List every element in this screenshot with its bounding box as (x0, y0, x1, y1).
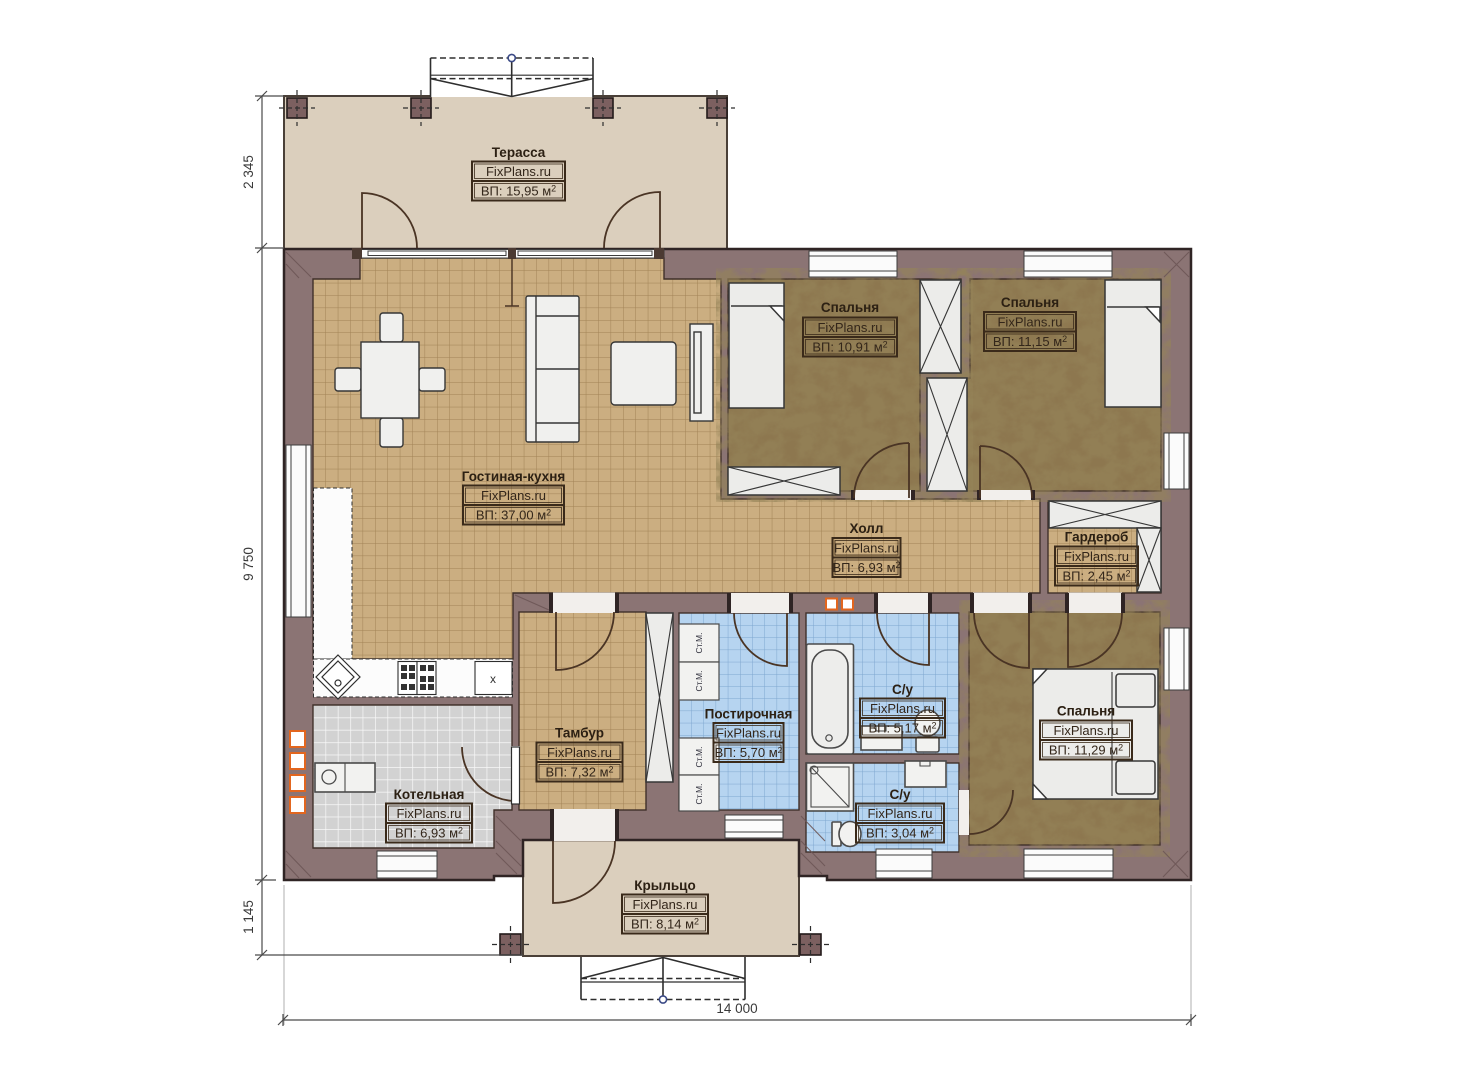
svg-text:FixPlans.ru: FixPlans.ru (867, 806, 932, 821)
svg-text:Спальня: Спальня (821, 300, 879, 315)
svg-text:1 145: 1 145 (241, 900, 256, 934)
svg-text:FixPlans.ru: FixPlans.ru (834, 541, 899, 556)
svg-text:FixPlans.ru: FixPlans.ru (547, 745, 612, 760)
svg-text:ВП: 5,17 м2: ВП: 5,17 м2 (868, 721, 936, 736)
svg-text:Постирочная: Постирочная (705, 707, 793, 722)
svg-text:FixPlans.ru: FixPlans.ru (1053, 723, 1118, 738)
svg-text:ВП: 10,91 м2: ВП: 10,91 м2 (812, 340, 887, 355)
svg-text:14 000: 14 000 (716, 1001, 757, 1016)
svg-text:ВП: 2,45 м2: ВП: 2,45 м2 (1062, 569, 1130, 584)
svg-text:ВП: 3,04 м2: ВП: 3,04 м2 (866, 826, 934, 841)
svg-text:Ст.М.: Ст.М. (694, 671, 704, 692)
svg-text:ВП: 11,15 м2: ВП: 11,15 м2 (993, 334, 1067, 349)
svg-text:Спальня: Спальня (1057, 704, 1115, 719)
svg-text:FixPlans.ru: FixPlans.ru (1064, 549, 1129, 564)
svg-text:ВП: 11,29 м2: ВП: 11,29 м2 (1049, 743, 1123, 758)
svg-text:FixPlans.ru: FixPlans.ru (870, 701, 935, 716)
svg-text:ВП: 5,70 м2: ВП: 5,70 м2 (715, 745, 783, 760)
svg-text:FixPlans.ru: FixPlans.ru (632, 897, 697, 912)
svg-text:ВП: 6,93 м2: ВП: 6,93 м2 (395, 826, 463, 841)
svg-text:Крыльцо: Крыльцо (634, 878, 695, 893)
svg-text:Ст.М.: Ст.М. (694, 633, 704, 654)
svg-text:Котельная: Котельная (394, 787, 465, 802)
svg-text:Холл: Холл (850, 521, 884, 536)
svg-text:FixPlans.ru: FixPlans.ru (396, 806, 461, 821)
svg-text:С/у: С/у (892, 682, 914, 697)
svg-text:Тамбур: Тамбур (555, 726, 604, 741)
svg-text:9 750: 9 750 (241, 547, 256, 581)
svg-text:FixPlans.ru: FixPlans.ru (716, 726, 781, 741)
svg-text:2 345: 2 345 (241, 155, 256, 189)
svg-text:ВП: 7,32 м2: ВП: 7,32 м2 (545, 765, 613, 780)
svg-text:FixPlans.ru: FixPlans.ru (817, 320, 882, 335)
svg-text:x: x (490, 672, 496, 686)
svg-text:С/у: С/у (889, 787, 911, 802)
svg-text:FixPlans.ru: FixPlans.ru (486, 164, 551, 179)
svg-text:FixPlans.ru: FixPlans.ru (481, 488, 546, 503)
svg-text:ВП: 37,00 м2: ВП: 37,00 м2 (476, 508, 551, 523)
svg-text:Гостиная-кухня: Гостиная-кухня (462, 469, 565, 484)
svg-text:Терасса: Терасса (492, 145, 546, 160)
svg-text:ВП: 8,14 м2: ВП: 8,14 м2 (631, 917, 699, 932)
svg-text:ВП: 15,95 м2: ВП: 15,95 м2 (481, 184, 556, 199)
svg-text:ВП: 6,93 м2: ВП: 6,93 м2 (832, 560, 900, 575)
svg-text:Спальня: Спальня (1001, 295, 1059, 310)
svg-text:Ст.М.: Ст.М. (694, 747, 704, 768)
svg-text:Ст.М.: Ст.М. (694, 784, 704, 805)
svg-text:FixPlans.ru: FixPlans.ru (997, 315, 1062, 330)
svg-text:Гардероб: Гардероб (1065, 530, 1129, 545)
